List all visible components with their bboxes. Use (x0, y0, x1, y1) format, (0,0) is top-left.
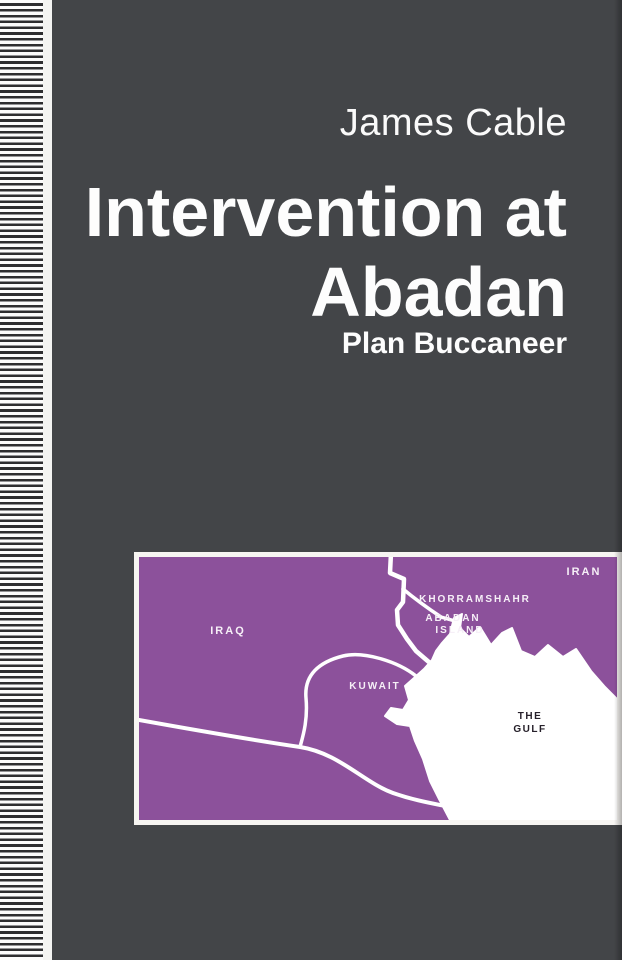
title-line-1: Intervention at (85, 172, 567, 252)
cover-edge-shadow (614, 0, 622, 960)
label-gulf-line2: GULF (513, 724, 546, 735)
gulf-sea-shape (385, 614, 617, 820)
kuwait-border-line (300, 655, 416, 747)
spine-stripe-band (0, 0, 43, 960)
book-cover: James Cable Intervention at Abadan Plan … (52, 0, 622, 960)
map-panel: IRAQ KUWAIT KHORRAMSHAHR ABADAN ISLAND I… (134, 552, 622, 825)
label-abadan-line1: ABADAN (425, 613, 480, 624)
label-kuwait: KUWAIT (349, 681, 400, 692)
label-gulf-line1: THE (518, 711, 543, 722)
label-iran: IRAN (567, 566, 602, 578)
author-name: James Cable (340, 102, 567, 144)
southern-border-line (139, 720, 445, 806)
label-abadan-line2: ISLAND (435, 625, 484, 636)
river-shatt-al-arab (390, 557, 430, 663)
book-subtitle: Plan Buccaneer (342, 327, 567, 361)
gulf-map: IRAQ KUWAIT KHORRAMSHAHR ABADAN ISLAND I… (139, 557, 617, 820)
spine-separator (43, 0, 52, 960)
label-khorramshahr: KHORRAMSHAHR (419, 594, 531, 605)
book-title: Intervention at Abadan (85, 172, 567, 332)
label-iraq: IRAQ (210, 625, 246, 637)
title-line-2: Abadan (85, 252, 567, 332)
